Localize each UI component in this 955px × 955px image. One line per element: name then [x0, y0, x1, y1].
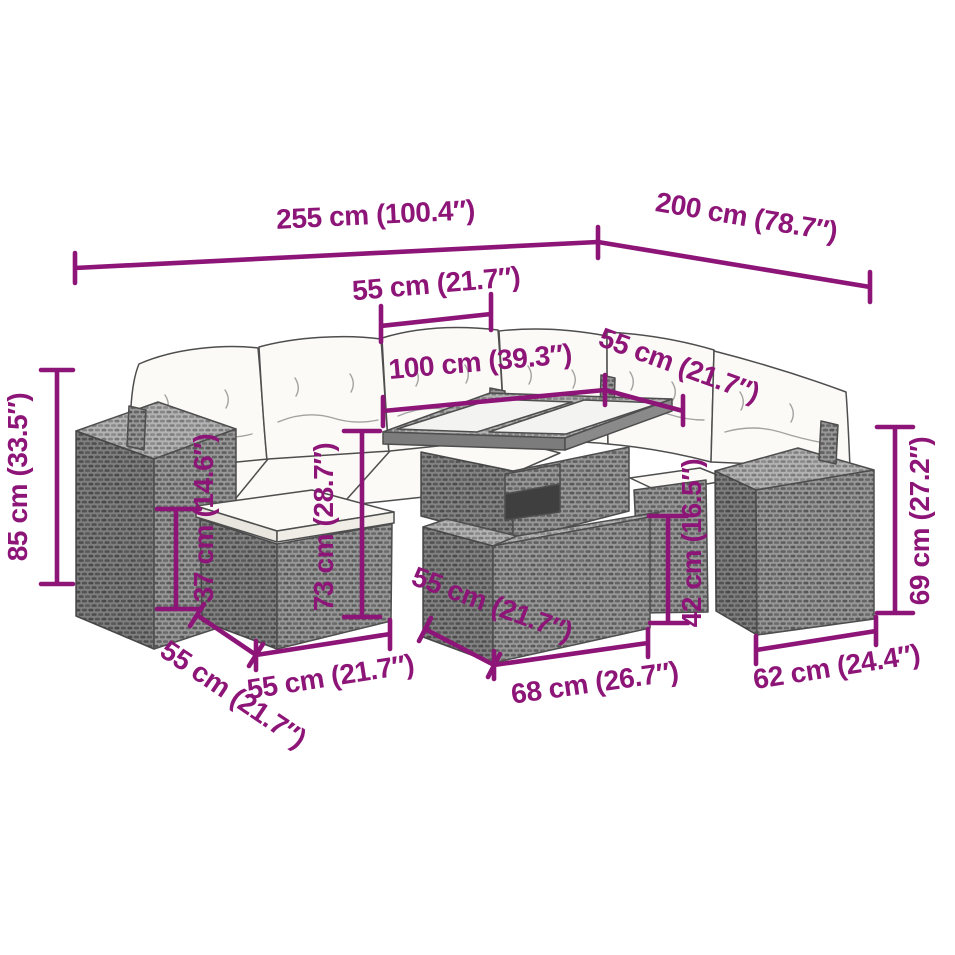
dimension-diagram: 255 cm (100.4″) 200 cm (78.7″) 55 cm (21… — [0, 0, 955, 955]
dim-total-depth-line — [598, 242, 870, 302]
backrest-frame-post-left — [127, 406, 146, 450]
right-armrest-front-shade — [715, 471, 757, 635]
dim-total-width: 255 cm (100.4″) — [75, 194, 598, 283]
dim-armrest-height-label: 69 cm (27.2″) — [904, 437, 935, 606]
dim-footstool-width-label: 55 cm (21.7″) — [245, 648, 416, 705]
backrest-frame-post-right — [819, 421, 838, 464]
dim-seat-height-label: 42 cm (16.5″) — [676, 459, 707, 628]
back-cushion-2 — [259, 337, 389, 460]
dim-armrest-height: 69 cm (27.2″) — [877, 427, 935, 613]
dim-total-width-label: 255 cm (100.4″) — [275, 194, 475, 235]
dim-sofa-height: 85 cm (33.5″) — [2, 370, 73, 584]
left-armrest-front-shade — [76, 431, 154, 649]
diagram-canvas: 255 cm (100.4″) 200 cm (78.7″) 55 cm (21… — [0, 0, 955, 955]
dim-total-depth: 200 cm (78.7″) — [598, 186, 870, 302]
dim-total-depth-label: 200 cm (78.7″) — [653, 186, 839, 247]
dim-table-height-label: 73 cm (28.7″) — [308, 443, 339, 612]
dim-backrest-width-label: 55 cm (21.7″) — [351, 261, 522, 307]
right-armrest-side-face — [756, 470, 874, 635]
dim-ottoman-width-label: 68 cm (26.7″) — [509, 656, 680, 710]
dim-footstool-height-label: 37 cm (14.6″) — [188, 434, 219, 603]
dim-sofa-height-line — [41, 370, 73, 584]
dim-sofa-height-label: 85 cm (33.5″) — [2, 393, 33, 562]
